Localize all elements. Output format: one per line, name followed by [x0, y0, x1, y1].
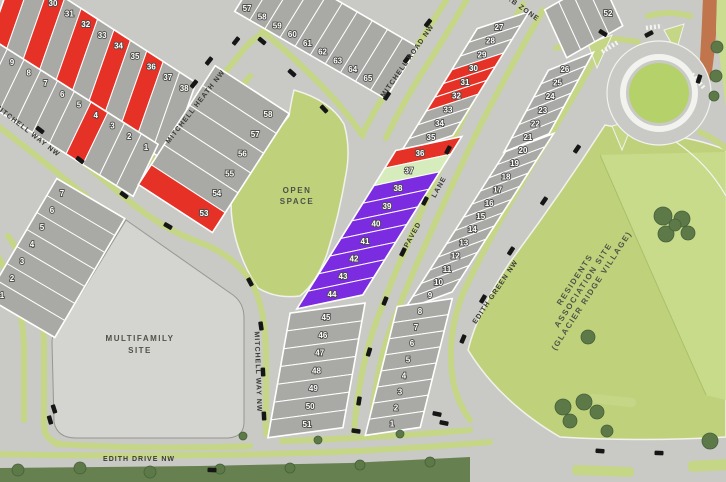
tree — [144, 466, 156, 478]
tree — [314, 436, 322, 444]
lot-number: 32 — [81, 20, 90, 29]
lot-number: 54 — [212, 189, 221, 198]
lot-number: 11 — [443, 265, 452, 274]
lot-number: 53 — [200, 209, 209, 218]
lot-number: 61 — [303, 39, 312, 48]
lot-number: 33 — [444, 105, 453, 114]
map-canvas: 3031323334353637389876543215758596061626… — [0, 0, 726, 482]
lot-number: 32 — [452, 92, 461, 101]
lot-number: 6 — [50, 206, 55, 215]
lot-number: 30 — [469, 64, 478, 73]
site-plan-map: 3031323334353637389876543215758596061626… — [0, 0, 726, 482]
area-label-line: MULTIFAMILY — [106, 334, 175, 343]
lot-number: 38 — [394, 184, 403, 193]
car-marker — [262, 411, 267, 420]
tree — [576, 394, 592, 410]
lot-number: 64 — [348, 65, 357, 74]
lot-number: 57 — [251, 130, 260, 139]
lot-number: 9 — [10, 58, 15, 67]
lot-number: 56 — [238, 150, 247, 159]
lot-number: 59 — [273, 21, 282, 30]
lot-number: 3 — [398, 388, 403, 397]
lot-number: 41 — [361, 237, 370, 246]
car-marker — [207, 468, 216, 473]
lot-number: 1 — [0, 291, 5, 300]
roundabout — [607, 41, 711, 145]
lot-number: 23 — [538, 106, 547, 115]
lot-number: 5 — [40, 223, 45, 232]
lot-number: 58 — [258, 13, 267, 22]
lot-number: 18 — [502, 172, 511, 181]
lot-number: 25 — [553, 79, 562, 88]
car-marker — [595, 448, 604, 453]
lot-number: 27 — [495, 23, 504, 32]
lot-number: 26 — [560, 65, 569, 74]
lot-number: 15 — [476, 212, 485, 221]
tree — [396, 430, 404, 438]
lot-number: 28 — [486, 37, 495, 46]
tree — [563, 414, 577, 428]
lot-number: 62 — [318, 48, 327, 57]
lot-number: 4 — [30, 240, 35, 249]
lot-number: 10 — [434, 278, 443, 287]
lot-number: 9 — [428, 291, 433, 300]
lot-number: 13 — [459, 238, 468, 247]
lot-number: 48 — [312, 366, 321, 375]
lot-number: 60 — [288, 30, 297, 39]
lot-number: 19 — [510, 159, 519, 168]
lot-number: 1 — [390, 420, 395, 429]
lot-number: 37 — [405, 167, 414, 176]
tree — [710, 70, 722, 82]
lot-number: 2 — [127, 132, 132, 141]
road-verge — [56, 444, 250, 448]
lot-number: 65 — [363, 74, 372, 83]
roundabout-center-island — [629, 63, 689, 123]
tree — [601, 425, 613, 437]
lot-number: 44 — [328, 290, 337, 299]
lot-number: 46 — [318, 331, 327, 340]
median-island — [688, 459, 726, 472]
lot-number: 40 — [372, 219, 381, 228]
lot-number: 34 — [435, 119, 444, 128]
tree — [581, 330, 595, 344]
lot-number: 7 — [60, 189, 65, 198]
lot-number: 3 — [110, 122, 115, 131]
lot-number: 35 — [131, 52, 140, 61]
car-marker — [654, 451, 663, 456]
lot-number: 7 — [43, 79, 48, 88]
lot-number: 5 — [77, 100, 82, 109]
lot-number: 33 — [98, 31, 107, 40]
street-label-edith-drive-nw: EDITH DRIVE NW — [103, 456, 175, 463]
area-label-line: OPEN — [283, 186, 312, 195]
lot-number: 16 — [485, 199, 494, 208]
tree — [590, 405, 604, 419]
lot-number: 43 — [339, 272, 348, 281]
lot-number: 35 — [427, 133, 436, 142]
lot-number: 47 — [315, 349, 324, 358]
lot-number: 2 — [10, 274, 15, 283]
lot-number: 36 — [416, 149, 425, 158]
tree — [74, 462, 86, 474]
lot-number: 34 — [114, 41, 123, 50]
area-label-line: SITE — [128, 346, 152, 355]
lot-number: 24 — [546, 92, 555, 101]
lot-number: 1 — [144, 143, 149, 152]
lot-number: 8 — [26, 69, 31, 78]
lot-number: 45 — [322, 313, 331, 322]
lot-number: 50 — [306, 402, 315, 411]
lot-number: 4 — [402, 371, 407, 380]
tree — [239, 432, 247, 440]
tree — [709, 91, 719, 101]
lot-number: 55 — [225, 169, 234, 178]
lot-number: 58 — [264, 110, 273, 119]
tree — [681, 226, 695, 240]
lot-number: 17 — [493, 186, 502, 195]
lot-number: 14 — [468, 225, 477, 234]
tree — [355, 460, 365, 470]
lot-number: 49 — [309, 384, 318, 393]
lot-number: 63 — [333, 56, 342, 65]
tree — [555, 399, 571, 415]
lot-number: 6 — [60, 90, 65, 99]
road-verge — [648, 13, 690, 16]
tree — [285, 463, 295, 473]
tree — [425, 457, 435, 467]
lot-number: 22 — [531, 119, 540, 128]
lot-number: 38 — [180, 84, 189, 93]
lot-number: 6 — [410, 339, 415, 348]
tree — [702, 433, 718, 449]
lot-number: 52 — [604, 9, 613, 18]
lot-number: 51 — [303, 420, 312, 429]
lot-number: 3 — [20, 257, 25, 266]
lot-number: 30 — [49, 0, 58, 8]
lot-number: 31 — [461, 78, 470, 87]
lot-number: 12 — [451, 252, 460, 261]
lot-number: 8 — [418, 307, 423, 316]
lot-number: 4 — [93, 111, 98, 120]
lot-number: 21 — [523, 133, 532, 142]
lot-number: 7 — [414, 323, 419, 332]
lot-number: 37 — [163, 73, 172, 82]
lot-number: 36 — [147, 63, 156, 72]
lot-number: 20 — [519, 146, 528, 155]
lot-number: 39 — [383, 202, 392, 211]
lot-number: 5 — [406, 355, 411, 364]
lot-number: 42 — [350, 255, 359, 264]
tree — [669, 219, 681, 231]
lot-number: 29 — [478, 50, 487, 59]
area-label-line: SPACE — [280, 197, 314, 206]
tree — [12, 464, 24, 476]
lot-number: 2 — [394, 404, 399, 413]
lot-number: 31 — [65, 10, 74, 19]
tree — [711, 41, 723, 53]
lot-number: 57 — [243, 4, 252, 13]
